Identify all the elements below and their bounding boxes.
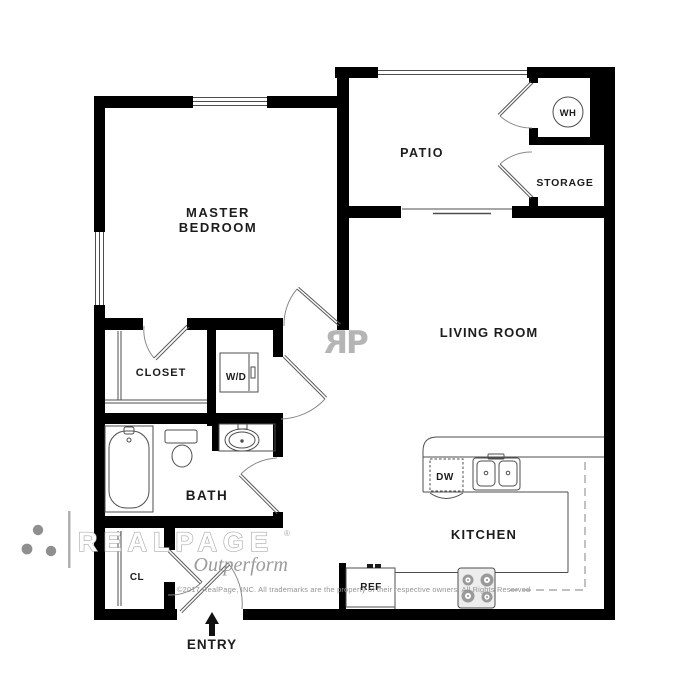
wall-bottom-left [94,609,177,620]
wall-bedroom-patio-divider [337,67,349,330]
wall-bottom-right [243,609,615,620]
appliance-label-dishwasher: DW [436,472,454,483]
wall-bedroom-bottom-a [94,318,143,330]
wall-right [604,67,615,620]
floor-plan: MASTER BEDROOM PATIO STORAGE WH LIVING R… [0,0,697,697]
realpage-wordmark: REALPAGE [78,527,274,557]
registered-mark: ® [284,529,290,538]
window-bedroom-left [94,232,105,305]
room-label-living-room: LIVING ROOM [440,325,538,340]
floor-plan-page: MASTER BEDROOM PATIO STORAGE WH LIVING R… [0,0,697,697]
copyright-line: ©2017 RealPage, INC. All trademarks are … [177,585,530,594]
room-label-patio: PATIO [400,146,444,160]
closet-door [144,325,189,360]
wall-patio-bottom-left [337,206,401,218]
bath-door [239,458,279,514]
toilet [165,430,197,467]
wall-bedroom-bottom-b [187,318,278,330]
room-label-closet: CLOSET [136,367,187,379]
room-label-master-line1: MASTER [186,205,250,220]
room-label-entry: ENTRY [187,637,237,652]
room-label-cl: CL [130,572,144,583]
bath-sink-vanity [219,424,275,451]
wall-hall-column-top [273,318,283,357]
window-bedroom-top [193,96,267,108]
patio-rail [378,71,527,75]
outperform-tagline: Outperform [194,554,288,576]
wall-wh-right-block [590,67,615,145]
wall-wh-bottom [529,137,590,145]
entry-arrow-icon [205,612,219,636]
realpage-logo-divider [68,511,71,568]
wall-bath-top [94,413,283,424]
kitchen-sink [473,454,520,490]
rp-monogram: R P [324,325,369,361]
rp-monogram-p: P [346,325,369,361]
room-label-master-line2: BEDROOM [179,220,257,235]
water-heater-door [498,82,533,129]
patio-sliding-door [402,209,512,214]
hall-door [281,355,327,419]
room-label-kitchen: KITCHEN [451,527,517,542]
room-label-water-heater: WH [560,108,577,119]
wall-bedroom-top-left [94,96,193,108]
wall-storage-bottom [512,206,615,218]
wall-vanity-stub [212,424,219,451]
wall-left-lower [94,305,105,620]
bedroom-door [284,287,341,326]
wall-bedroom-top-right [267,96,337,108]
storage-door [498,152,533,199]
room-label-bath: BATH [186,488,229,503]
wall-closet-wd-divider [207,330,216,426]
wall-wh-column-top [529,67,538,83]
realpage-logo-dots [22,525,57,556]
rp-monogram-reversed-r: R [324,325,348,361]
room-label-storage: STORAGE [536,177,593,189]
wall-left-upper [94,96,105,232]
room-label-washer-dryer: W/D [226,372,246,383]
bathtub [105,426,153,512]
